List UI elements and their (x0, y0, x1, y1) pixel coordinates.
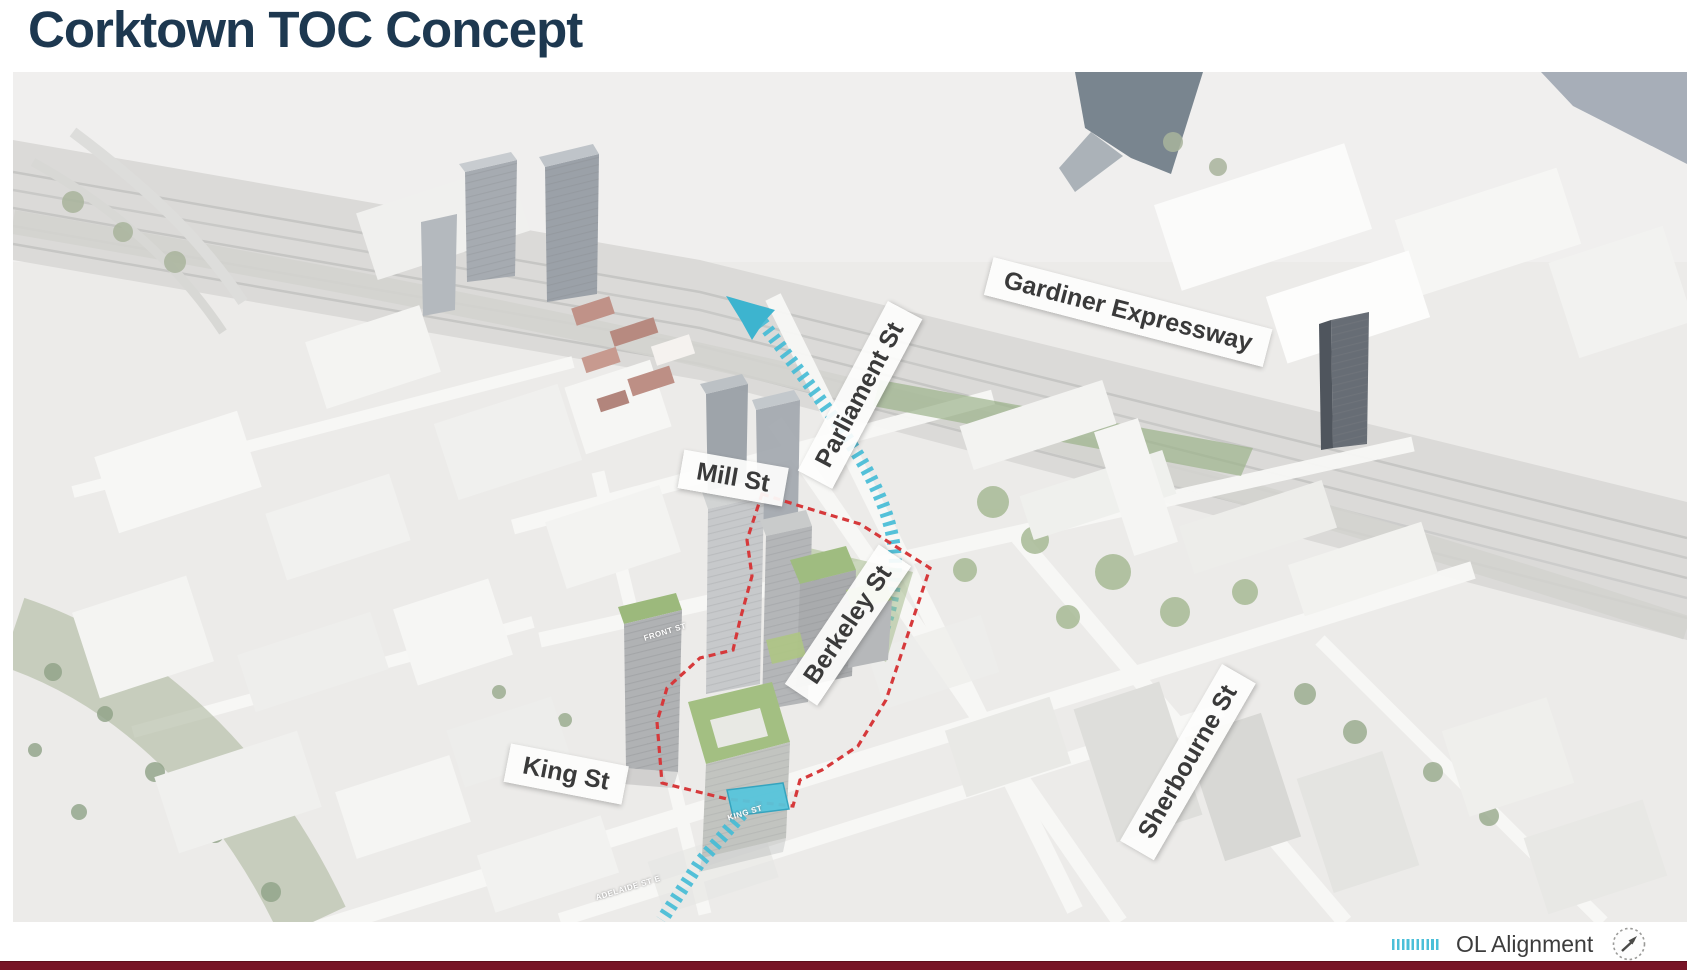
aerial-map-art (13, 72, 1687, 922)
aerial-map: Gardiner Expressway Parliament St Mill S… (13, 72, 1687, 922)
north-arrow-icon (1608, 923, 1650, 965)
map-legend: OL Alignment (1392, 922, 1650, 966)
footer-accent-bar (0, 961, 1687, 970)
page-title: Corktown TOC Concept (28, 0, 582, 59)
ol-alignment-legend-label: OL Alignment (1456, 931, 1593, 958)
ol-alignment-swatch-icon (1392, 939, 1441, 950)
